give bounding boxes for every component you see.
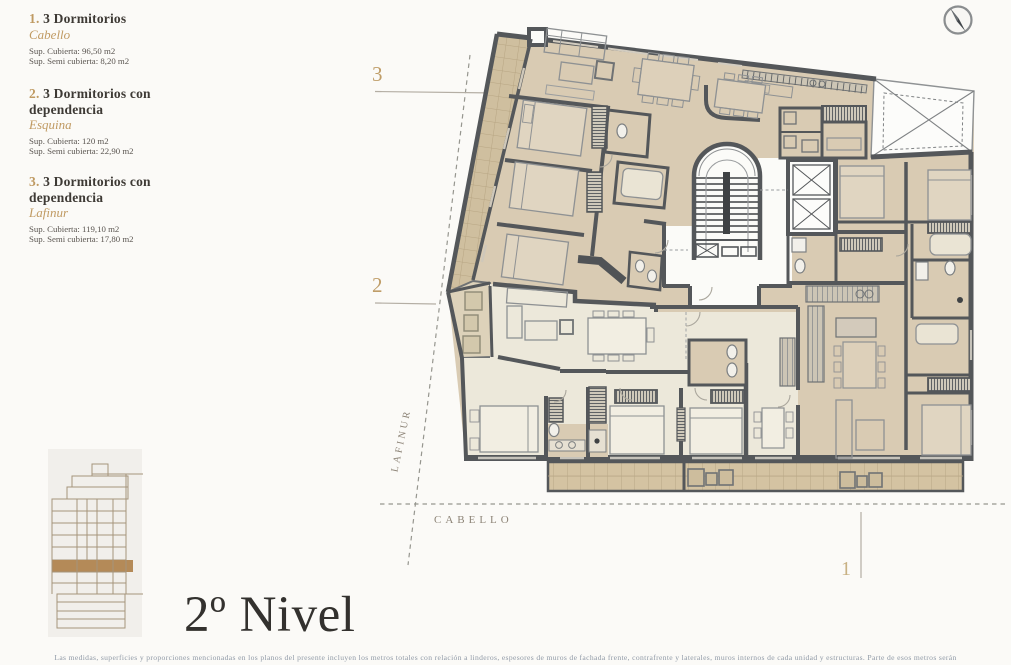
svg-text:2: 2 <box>372 273 383 297</box>
svg-text:3: 3 <box>372 62 383 86</box>
svg-text:CABELLO: CABELLO <box>434 514 513 526</box>
svg-text:LAFINUR: LAFINUR <box>389 408 413 473</box>
svg-text:1: 1 <box>841 558 851 580</box>
